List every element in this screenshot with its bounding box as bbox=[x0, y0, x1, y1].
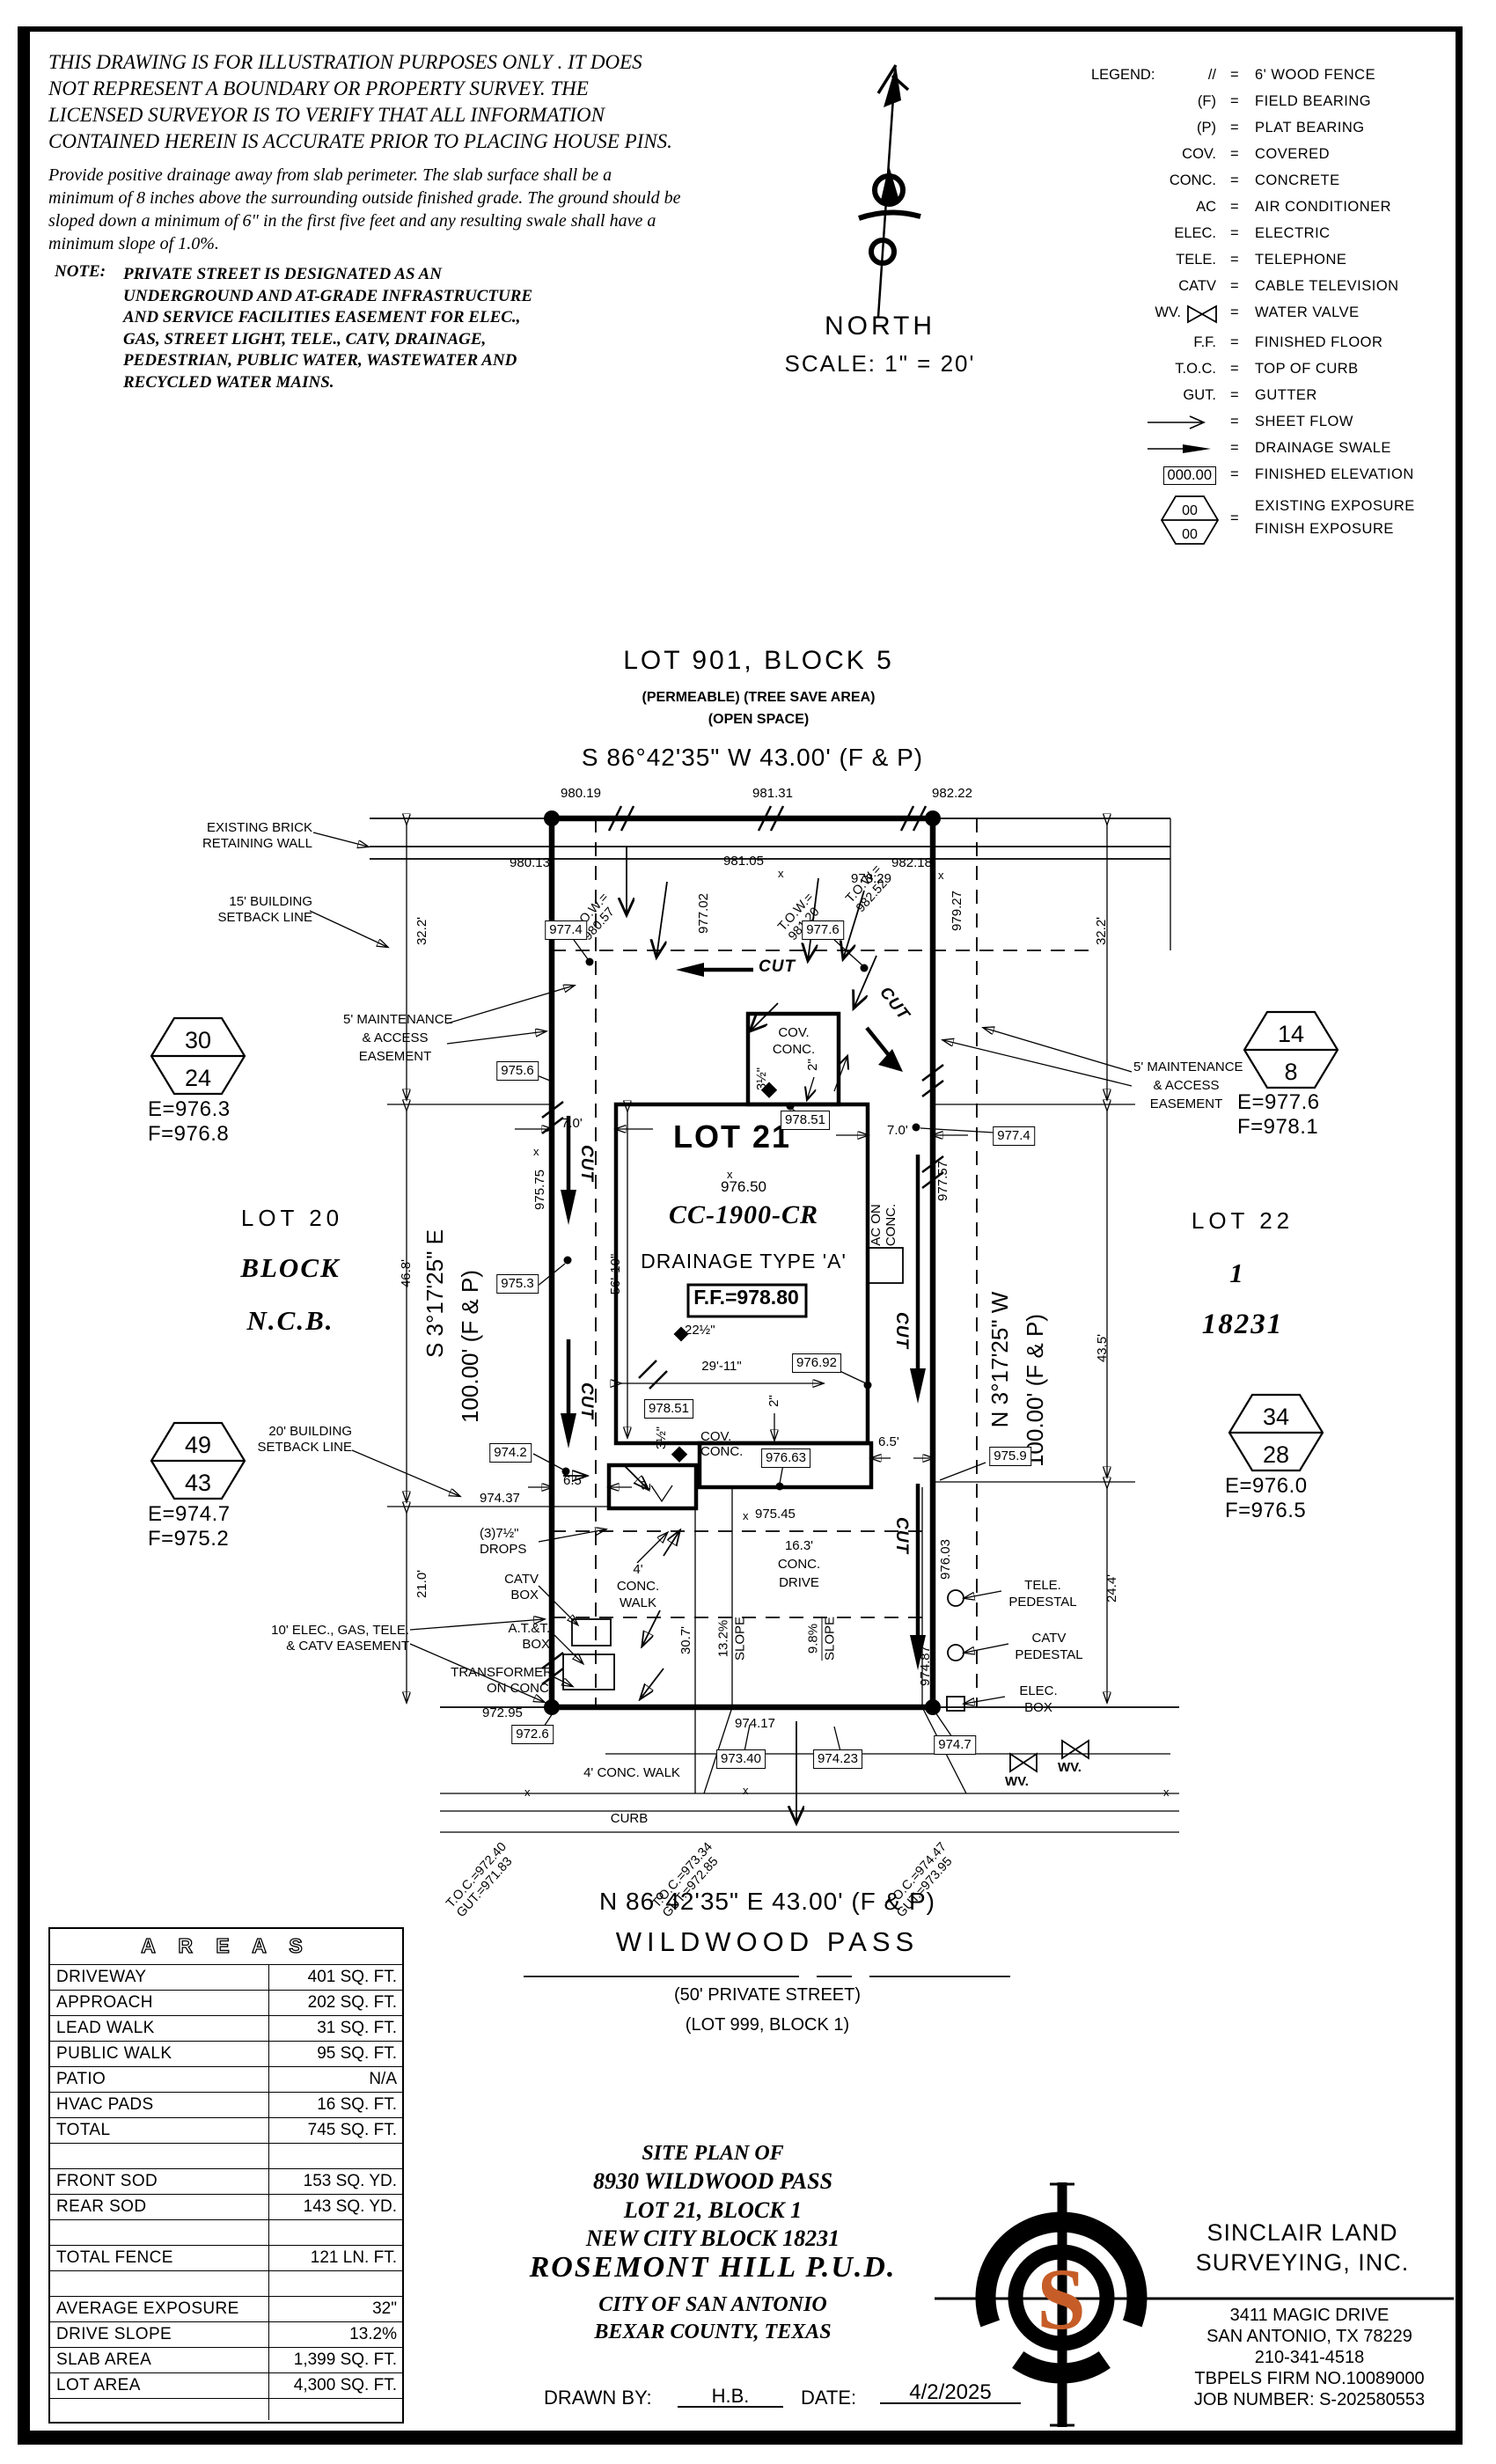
disclaimer-line: THIS DRAWING IS FOR ILLUSTRATION PURPOSE… bbox=[48, 49, 672, 76]
drainage-note-line: sloped down a minimum of 6" in the first… bbox=[48, 209, 680, 232]
legend-desc: TOP OF CURB bbox=[1255, 361, 1359, 378]
drainage-note-block: Provide positive drainage away from slab… bbox=[48, 164, 680, 255]
areas-value: 13.2% bbox=[268, 2322, 402, 2348]
transformer-callout: TRANSFORMERON CONC. bbox=[438, 1665, 553, 1697]
setback20-callout: 20' BUILDINGSETBACK LINE bbox=[224, 1424, 352, 1456]
legend-row: =DRAINAGE SWALE bbox=[1091, 440, 1461, 466]
survey-x-mark: x bbox=[743, 1508, 749, 1524]
legend-symbol: GUT. bbox=[1183, 387, 1216, 404]
equals-sign: = bbox=[1230, 225, 1239, 242]
legend-row: F.F.=FINISHED FLOOR bbox=[1091, 334, 1461, 361]
callout-line: & CATV EASEMENT bbox=[242, 1639, 409, 1654]
callout-line: SETBACK LINE bbox=[185, 910, 312, 926]
areas-value: 32" bbox=[268, 2297, 402, 2322]
dim-label: 2" bbox=[805, 1059, 821, 1071]
logo-monogram: S bbox=[1037, 2250, 1086, 2348]
street-sub2: (LOT 999, BLOCK 1) bbox=[686, 2017, 849, 2033]
areas-value: 143 SQ. YD. bbox=[268, 2195, 402, 2220]
areas-value: 4,300 SQ. FT. bbox=[268, 2373, 402, 2399]
maintenance-easement-callout: 5' MAINTENANCE& ACCESSEASEMENT bbox=[1133, 1058, 1239, 1113]
callout-line: BOX bbox=[486, 1588, 539, 1603]
legend-row: =SHEET FLOW bbox=[1091, 414, 1461, 440]
equals-sign: = bbox=[1230, 93, 1239, 110]
hex-existing: 34 bbox=[1263, 1404, 1289, 1430]
elev-box: 976.63 bbox=[761, 1448, 810, 1468]
callout-line: ON CONC. bbox=[438, 1681, 553, 1697]
cov-conc-label: COV.CONC. bbox=[700, 1429, 743, 1459]
disclaimer-line: NOT REPRESENT A BOUNDARY OR PROPERTY SUR… bbox=[48, 76, 672, 102]
dim-label: 32.2' bbox=[414, 917, 430, 945]
equals-sign: = bbox=[1230, 172, 1239, 189]
areas-row bbox=[50, 2219, 402, 2246]
elev-box: 975.6 bbox=[496, 1061, 539, 1081]
drainage-note-line: minimum slope of 1.0%. bbox=[48, 232, 680, 255]
exposure-e: E=976.3 bbox=[148, 1102, 231, 1118]
legend-desc: TELEPHONE bbox=[1255, 252, 1346, 268]
callout-line: EASEMENT bbox=[343, 1047, 447, 1066]
elev-box: 977.4 bbox=[545, 920, 587, 940]
callout-line: CONC. bbox=[884, 1204, 898, 1246]
lot21-model: CC-1900-CR bbox=[669, 1207, 818, 1223]
elevation: 974.37 bbox=[480, 1491, 520, 1507]
scale-label: SCALE: 1" = 20' bbox=[785, 356, 976, 371]
elevation: 981.05 bbox=[723, 854, 764, 869]
disclaimer-block: THIS DRAWING IS FOR ILLUSTRATION PURPOSE… bbox=[48, 49, 672, 155]
areas-value bbox=[268, 2271, 402, 2297]
legend-desc: SHEET FLOW bbox=[1255, 414, 1353, 430]
areas-row: REAR SOD143 SQ. YD. bbox=[50, 2194, 402, 2220]
note-line: RECYCLED WATER MAINS. bbox=[123, 372, 532, 394]
exposure-hexagon: 14 8 bbox=[1242, 1009, 1340, 1090]
disclaimer-line: CONTAINED HEREIN IS ACCURATE PRIOR TO PL… bbox=[48, 128, 672, 155]
legend-symbol: T.O.C. bbox=[1175, 361, 1216, 378]
callout-line: & ACCESS bbox=[343, 1029, 447, 1047]
hex-finish: 43 bbox=[185, 1470, 211, 1496]
hex-existing: 14 bbox=[1278, 1021, 1304, 1047]
callout-line: WALK bbox=[617, 1595, 659, 1611]
elevation: 975.45 bbox=[755, 1507, 796, 1522]
legend-row: //=6' WOOD FENCE bbox=[1091, 67, 1461, 93]
cov-conc-label: COV.CONC. bbox=[773, 1024, 815, 1058]
disclaimer-line: LICENSED SURVEYOR IS TO VERIFY THAT ALL … bbox=[48, 102, 672, 128]
callout-line: 4' bbox=[617, 1561, 659, 1578]
legend-row: CONC.=CONCRETE bbox=[1091, 172, 1461, 199]
areas-label: TOTAL bbox=[56, 2121, 110, 2140]
surveyor-address-line: 3411 MAGIC DRIVE bbox=[1230, 2307, 1390, 2323]
drawn-by-value: H.B. bbox=[678, 2388, 783, 2408]
elevation: 980.19 bbox=[561, 786, 601, 802]
dim-label: 2' bbox=[639, 1480, 655, 1490]
callout-line: 15' BUILDING bbox=[185, 894, 312, 910]
exposure-f: F=976.8 bbox=[148, 1126, 229, 1142]
elev-box: 972.6 bbox=[511, 1725, 554, 1744]
equals-sign: = bbox=[1230, 252, 1239, 268]
surveyor-firm-number: TBPELS FIRM NO.10089000 bbox=[1194, 2371, 1424, 2387]
callout-line: SETBACK LINE bbox=[224, 1440, 352, 1456]
dim-label: 6.5' bbox=[878, 1434, 899, 1450]
areas-value: 1,399 SQ. FT. bbox=[268, 2348, 402, 2373]
att-box-callout: A.T.&T.BOX bbox=[480, 1621, 550, 1653]
elevation-rotated: 977.57 bbox=[935, 1161, 951, 1201]
bearing-south: N 86°42'35" E 43.00' (F & P) bbox=[599, 1894, 935, 1910]
lot21-drainage: DRAINAGE TYPE 'A' bbox=[641, 1253, 847, 1269]
areas-title: A R E A S bbox=[50, 1929, 402, 1966]
water-valve-icon bbox=[1186, 304, 1218, 324]
legend-desc: 6' WOOD FENCE bbox=[1255, 67, 1375, 84]
sheet-flow-icon bbox=[1148, 414, 1218, 431]
callout-line: CONC. bbox=[778, 1555, 820, 1573]
legend-symbol: AC bbox=[1196, 199, 1216, 216]
elev-box: 974.23 bbox=[813, 1749, 862, 1769]
elec-box-callout: ELEC.BOX bbox=[1019, 1683, 1057, 1716]
legend-symbol: ELEC. bbox=[1174, 225, 1216, 242]
equals-sign: = bbox=[1230, 278, 1239, 295]
bearing-west-line2: 100.00' (F & P) bbox=[462, 1270, 478, 1423]
legend-row: AC=AIR CONDITIONER bbox=[1091, 199, 1461, 225]
elev-box: 975.9 bbox=[989, 1447, 1031, 1466]
lot20-label: LOT 20 bbox=[241, 1210, 343, 1226]
legend-symbol: (P) bbox=[1197, 120, 1216, 136]
elev-box: 973.40 bbox=[716, 1749, 766, 1769]
areas-value: 31 SQ. FT. bbox=[268, 2016, 402, 2042]
exposure-f: F=976.5 bbox=[1225, 1503, 1306, 1519]
elevation: 974.17 bbox=[735, 1716, 775, 1732]
exposure-e: E=976.0 bbox=[1225, 1478, 1308, 1494]
legend-symbol: COV. bbox=[1182, 146, 1216, 163]
bearing-west-line1: S 3°17'25" E bbox=[427, 1229, 443, 1358]
areas-row bbox=[50, 2398, 402, 2420]
drainage-note-line: Provide positive drainage away from slab… bbox=[48, 164, 680, 187]
wv-label: WV. bbox=[1005, 1774, 1029, 1790]
lot20-block: BLOCK bbox=[240, 1260, 340, 1276]
drainage-swale-icon bbox=[1148, 440, 1218, 458]
callout-line: 5' MAINTENANCE bbox=[1133, 1058, 1239, 1076]
legend-symbol: (F) bbox=[1198, 93, 1216, 110]
exposure-hexagon: 30 24 bbox=[149, 1016, 247, 1096]
hex-existing: 30 bbox=[185, 1027, 211, 1053]
north-arrow-icon bbox=[827, 60, 959, 341]
callout-line: CONC. bbox=[700, 1444, 743, 1459]
maintenance-easement-callout: 5' MAINTENANCE& ACCESSEASEMENT bbox=[343, 1010, 447, 1066]
dim-label: 30.7' bbox=[678, 1626, 694, 1654]
slope-word: SLOPE bbox=[822, 1617, 839, 1661]
elevation-rotated: 976.03 bbox=[938, 1539, 954, 1580]
callout-line: PEDESTAL bbox=[1008, 1594, 1076, 1610]
legend-row: (F)=FIELD BEARING bbox=[1091, 93, 1461, 120]
areas-row: FRONT SOD153 SQ. YD. bbox=[50, 2168, 402, 2195]
areas-row: LEAD WALK31 SQ. FT. bbox=[50, 2015, 402, 2042]
legend-symbol: F.F. bbox=[1193, 334, 1216, 351]
dim-label: 22½" bbox=[685, 1323, 715, 1338]
site-plan-sheet: THIS DRAWING IS FOR ILLUSTRATION PURPOSE… bbox=[0, 0, 1496, 2464]
lot22-ncb: 18231 bbox=[1202, 1316, 1284, 1332]
callout-line: 16.3' bbox=[778, 1536, 820, 1555]
elevation: 980.13 bbox=[510, 855, 550, 871]
elev-box: 975.3 bbox=[496, 1274, 539, 1294]
areas-row bbox=[50, 2143, 402, 2169]
survey-x-mark: x bbox=[743, 1783, 749, 1799]
lot22-label: LOT 22 bbox=[1192, 1213, 1294, 1228]
legend-desc: FINISH EXPOSURE bbox=[1255, 521, 1394, 538]
areas-label: DRIVE SLOPE bbox=[56, 2325, 172, 2344]
callout-line: COV. bbox=[700, 1429, 743, 1444]
elevation-rotated: 974.87 bbox=[918, 1646, 934, 1686]
callout-line: EXISTING BRICK bbox=[180, 820, 312, 836]
lot901-title: LOT 901, BLOCK 5 bbox=[623, 653, 894, 669]
dim-label: 32.2' bbox=[1094, 917, 1110, 945]
equals-sign: = bbox=[1230, 146, 1239, 163]
legend-desc: GUTTER bbox=[1255, 387, 1317, 404]
date-label: DATE: bbox=[801, 2390, 856, 2406]
callout-line: BOX bbox=[1019, 1699, 1057, 1716]
areas-row: SLAB AREA1,399 SQ. FT. bbox=[50, 2347, 402, 2373]
callout-line: ELEC. bbox=[1019, 1683, 1057, 1699]
slope-value: 13.2% bbox=[716, 1617, 732, 1661]
legend-symbol: TELE. bbox=[1176, 252, 1216, 268]
cut-label: CUT bbox=[578, 1382, 594, 1419]
legend-desc: ELECTRIC bbox=[1255, 225, 1331, 242]
equals-sign: = bbox=[1230, 334, 1239, 351]
areas-label: LEAD WALK bbox=[56, 2019, 155, 2038]
areas-value bbox=[268, 2144, 402, 2169]
legend-row: GUT.=GUTTER bbox=[1091, 387, 1461, 414]
exposure-e: E=977.6 bbox=[1237, 1095, 1320, 1111]
areas-row: TOTAL745 SQ. FT. bbox=[50, 2117, 402, 2144]
catv-pedestal-callout: CATVPEDESTAL bbox=[1015, 1630, 1082, 1663]
areas-row: APPROACH202 SQ. FT. bbox=[50, 1990, 402, 2016]
legend-desc: FINISHED ELEVATION bbox=[1255, 466, 1414, 483]
areas-table: A R E A S DRIVEWAY401 SQ. FT. APPROACH20… bbox=[48, 1927, 404, 2424]
equals-sign: = bbox=[1230, 199, 1239, 216]
areas-value: 401 SQ. FT. bbox=[268, 1965, 402, 1991]
callout-line: 10' ELEC., GAS, TELE. bbox=[242, 1623, 409, 1639]
title-line: 8930 WILDWOOD PASS bbox=[593, 2174, 832, 2189]
note-line: AND SERVICE FACILITIES EASEMENT FOR ELEC… bbox=[123, 307, 532, 329]
slope-value: 9.8% bbox=[806, 1617, 822, 1661]
exposure-finish-value: 00 bbox=[1182, 527, 1198, 542]
legend-desc: CONCRETE bbox=[1255, 172, 1340, 189]
street-name: WILDWOOD PASS bbox=[616, 1934, 919, 1950]
drainage-note-line: minimum of 8 inches above the surroundin… bbox=[48, 187, 680, 209]
elev-box: 974.2 bbox=[489, 1443, 532, 1463]
lot22-block: 1 bbox=[1229, 1265, 1243, 1281]
dim-label: 7.0' bbox=[561, 1116, 583, 1132]
callout-line: DRIVE bbox=[778, 1573, 820, 1592]
lot21-title: LOT 21 bbox=[673, 1129, 791, 1145]
dim-label: 24.4' bbox=[1104, 1574, 1120, 1602]
callout-line: 5' MAINTENANCE bbox=[343, 1010, 447, 1029]
areas-label: APPROACH bbox=[56, 1993, 153, 2013]
legend-desc: AIR CONDITIONER bbox=[1255, 199, 1391, 216]
areas-row: DRIVE SLOPE13.2% bbox=[50, 2321, 402, 2348]
elevation-rotated: 977.02 bbox=[696, 893, 712, 934]
legend-row: 000.00 =FINISHED ELEVATION bbox=[1091, 466, 1461, 493]
elev-box: 977.4 bbox=[993, 1126, 1035, 1146]
slope-word: SLOPE bbox=[732, 1617, 749, 1661]
callout-line: RETAINING WALL bbox=[180, 836, 312, 852]
areas-value: 153 SQ. YD. bbox=[268, 2169, 402, 2195]
hex-finish: 28 bbox=[1263, 1441, 1289, 1468]
callout-line: CATV bbox=[486, 1572, 539, 1588]
survey-x-mark: x bbox=[1163, 1785, 1170, 1800]
hex-finish: 8 bbox=[1284, 1059, 1297, 1085]
equals-sign: = bbox=[1230, 440, 1239, 457]
survey-x-mark: x bbox=[533, 1144, 539, 1160]
street-sub1: (50' PRIVATE STREET) bbox=[674, 1987, 861, 2003]
note-line: PRIVATE STREET IS DESIGNATED AS AN bbox=[123, 264, 532, 286]
legend-symbol: CATV bbox=[1178, 278, 1216, 295]
areas-row bbox=[50, 2270, 402, 2297]
areas-value bbox=[268, 2399, 402, 2420]
cut-label: CUT bbox=[578, 1145, 594, 1182]
retaining-wall-callout: EXISTING BRICKRETAINING WALL bbox=[180, 820, 312, 852]
surveyor-name-line: SINCLAIR LAND bbox=[1206, 2225, 1397, 2240]
sinclair-logo: S bbox=[958, 2195, 1166, 2402]
equals-sign: = bbox=[1230, 304, 1239, 321]
dim-label: 2" bbox=[766, 1395, 782, 1407]
areas-label: AVERAGE EXPOSURE bbox=[56, 2299, 239, 2319]
exposure-e: E=974.7 bbox=[148, 1507, 231, 1522]
callout-line: DROPS bbox=[480, 1542, 526, 1558]
elevation: 982.18 bbox=[891, 855, 932, 871]
dim-label: 46.8' bbox=[399, 1259, 414, 1287]
elev-box: 978.51 bbox=[781, 1111, 830, 1130]
setback15-callout: 15' BUILDINGSETBACK LINE bbox=[185, 894, 312, 926]
areas-value: 121 LN. FT. bbox=[268, 2246, 402, 2271]
elev-box: 976.92 bbox=[792, 1353, 841, 1373]
walk-callout: 4'CONC.WALK bbox=[617, 1561, 659, 1611]
callout-line: CONC. bbox=[617, 1578, 659, 1595]
callout-line: PEDESTAL bbox=[1015, 1646, 1082, 1663]
elevation-rotated: 979.27 bbox=[950, 891, 965, 931]
dim-label: 21.0' bbox=[414, 1570, 430, 1598]
areas-row: TOTAL FENCE121 LN. FT. bbox=[50, 2245, 402, 2271]
callout-line: BOX bbox=[480, 1637, 550, 1653]
areas-row: AVERAGE EXPOSURE32" bbox=[50, 2296, 402, 2322]
curb-label: CURB bbox=[611, 1811, 649, 1827]
slope-label: 9.8%SLOPE bbox=[806, 1617, 839, 1661]
exposure-f: F=975.2 bbox=[148, 1531, 229, 1547]
legend-symbol: WV. bbox=[1155, 304, 1181, 321]
bearing-east-line2: 100.00' (F & P) bbox=[1027, 1314, 1043, 1467]
legend-desc: DRAINAGE SWALE bbox=[1255, 440, 1391, 457]
note-label: NOTE: bbox=[55, 264, 106, 280]
areas-value: N/A bbox=[268, 2067, 402, 2093]
dim-label: 3½" bbox=[754, 1067, 770, 1090]
legend-row: WV. =WATER VALVE bbox=[1091, 304, 1461, 331]
areas-label: TOTAL FENCE bbox=[56, 2248, 173, 2268]
areas-label: FRONT SOD bbox=[56, 2172, 158, 2191]
survey-x-mark: x bbox=[778, 866, 784, 882]
legend-desc: FINISHED FLOOR bbox=[1255, 334, 1382, 351]
elev-box: 977.6 bbox=[802, 920, 844, 940]
title-line: CITY OF SAN ANTONIO bbox=[598, 2297, 826, 2313]
areas-value: 16 SQ. FT. bbox=[268, 2093, 402, 2118]
legend-symbol: CONC. bbox=[1170, 172, 1216, 189]
areas-label: PUBLIC WALK bbox=[56, 2044, 172, 2064]
equals-sign: = bbox=[1230, 361, 1239, 378]
hex-existing: 49 bbox=[185, 1432, 211, 1458]
bearing-north: S 86°42'35" W 43.00' (F & P) bbox=[582, 750, 923, 766]
north-label: NORTH bbox=[825, 319, 935, 334]
legend-desc: WATER VALVE bbox=[1255, 304, 1360, 321]
callout-line: COV. bbox=[773, 1024, 815, 1041]
equals-sign: = bbox=[1230, 67, 1239, 84]
legend-desc: PLAT BEARING bbox=[1255, 120, 1365, 136]
dim-label: 56'-10" bbox=[608, 1254, 624, 1295]
exposure-hexagon-icon: 00 00 bbox=[1160, 495, 1220, 546]
legend-row: (P)=PLAT BEARING bbox=[1091, 120, 1461, 146]
equals-sign: = bbox=[1230, 466, 1239, 483]
surveyor-job-number: JOB NUMBER: S-202580553 bbox=[1194, 2392, 1425, 2408]
areas-row: PATION/A bbox=[50, 2066, 402, 2093]
equals-sign: = bbox=[1230, 510, 1239, 527]
equals-sign: = bbox=[1230, 414, 1239, 430]
legend-desc: FIELD BEARING bbox=[1255, 93, 1371, 110]
elevation-rotated: 975.75 bbox=[532, 1170, 548, 1210]
exposure-existing-value: 00 bbox=[1182, 503, 1198, 518]
drawn-by-label: DRAWN BY: bbox=[544, 2390, 652, 2406]
elevation: 982.22 bbox=[932, 786, 972, 802]
callout-line: CATV bbox=[1015, 1630, 1082, 1646]
note-line: GAS, STREET LIGHT, TELE., CATV, DRAINAGE… bbox=[123, 329, 532, 351]
legend-desc: CABLE TELEVISION bbox=[1255, 278, 1399, 295]
areas-label: REAR SOD bbox=[56, 2197, 146, 2217]
dim-label: 7.0' bbox=[887, 1123, 908, 1139]
areas-value bbox=[268, 2220, 402, 2246]
callout-line: & ACCESS bbox=[1133, 1076, 1239, 1095]
cut-label: CUT bbox=[893, 1517, 909, 1554]
elevation: 972.95 bbox=[482, 1705, 523, 1721]
callout-line: EASEMENT bbox=[1133, 1095, 1239, 1113]
callout-line: (3)7½" bbox=[480, 1526, 526, 1542]
dim-label: 3½" bbox=[654, 1426, 670, 1449]
areas-label: HVAC PADS bbox=[56, 2095, 154, 2115]
areas-label: SLAB AREA bbox=[56, 2350, 151, 2370]
callout-line: TELE. bbox=[1008, 1577, 1076, 1594]
elev-box: 978.51 bbox=[644, 1399, 693, 1419]
tele-pedestal-callout: TELE.PEDESTAL bbox=[1008, 1577, 1076, 1610]
surveyor-phone: 210-341-4518 bbox=[1255, 2350, 1365, 2365]
survey-x-mark: x bbox=[524, 1785, 531, 1800]
areas-row: HVAC PADS16 SQ. FT. bbox=[50, 2092, 402, 2118]
lot21-spot-elev: 976.50 bbox=[721, 1179, 766, 1195]
title-line: BEXAR COUNTY, TEXAS bbox=[594, 2324, 831, 2340]
lot901-sub2: (OPEN SPACE) bbox=[708, 712, 809, 728]
title-line: LOT 21, BLOCK 1 bbox=[624, 2203, 802, 2218]
areas-value: 745 SQ. FT. bbox=[268, 2118, 402, 2144]
areas-row: PUBLIC WALK95 SQ. FT. bbox=[50, 2041, 402, 2067]
legend-desc: EXISTING EXPOSURE bbox=[1255, 498, 1415, 515]
areas-label: LOT AREA bbox=[56, 2376, 141, 2395]
ac-label: AC ONCONC. bbox=[869, 1204, 898, 1246]
areas-value: 202 SQ. FT. bbox=[268, 1991, 402, 2016]
drive-callout: 16.3'CONC.DRIVE bbox=[778, 1536, 820, 1592]
surveyor-name-line: SURVEYING, INC. bbox=[1196, 2255, 1410, 2270]
legend-row: T.O.C.=TOP OF CURB bbox=[1091, 361, 1461, 387]
equals-sign: = bbox=[1230, 387, 1239, 404]
equals-sign: = bbox=[1230, 120, 1239, 136]
title-line: SITE PLAN OF bbox=[642, 2145, 783, 2161]
elevation: 981.31 bbox=[752, 786, 793, 802]
easement10-callout: 10' ELEC., GAS, TELE.& CATV EASEMENT bbox=[242, 1623, 409, 1654]
areas-row: DRIVEWAY401 SQ. FT. bbox=[50, 1964, 402, 1991]
exposure-f: F=978.1 bbox=[1237, 1119, 1318, 1135]
note-block: PRIVATE STREET IS DESIGNATED AS AN UNDER… bbox=[123, 264, 532, 393]
walk-street-label: 4' CONC. WALK bbox=[583, 1765, 680, 1781]
lot20-ncb: N.C.B. bbox=[247, 1313, 334, 1329]
legend-row: 00 00 = EXISTING EXPOSURE FINISH EXPOSUR… bbox=[1091, 495, 1461, 549]
